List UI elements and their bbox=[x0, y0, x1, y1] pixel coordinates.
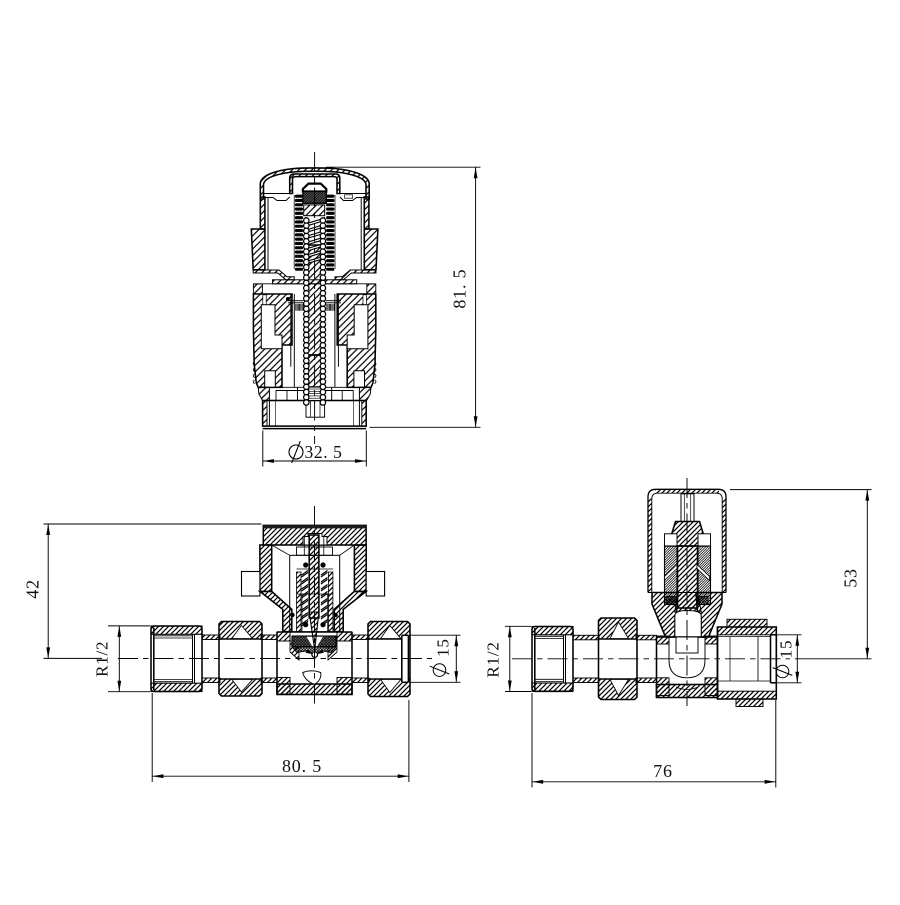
svg-text:76: 76 bbox=[653, 761, 673, 781]
svg-text:R1/2: R1/2 bbox=[93, 641, 112, 677]
svg-text:15: 15 bbox=[776, 640, 795, 659]
svg-text:32. 5: 32. 5 bbox=[305, 442, 343, 462]
svg-text:80. 5: 80. 5 bbox=[282, 756, 322, 776]
svg-text:R1/2: R1/2 bbox=[484, 641, 503, 677]
svg-text:53: 53 bbox=[841, 568, 861, 588]
svg-text:42: 42 bbox=[23, 579, 43, 599]
svg-text:81. 5: 81. 5 bbox=[450, 269, 470, 309]
svg-text:15: 15 bbox=[433, 638, 452, 657]
